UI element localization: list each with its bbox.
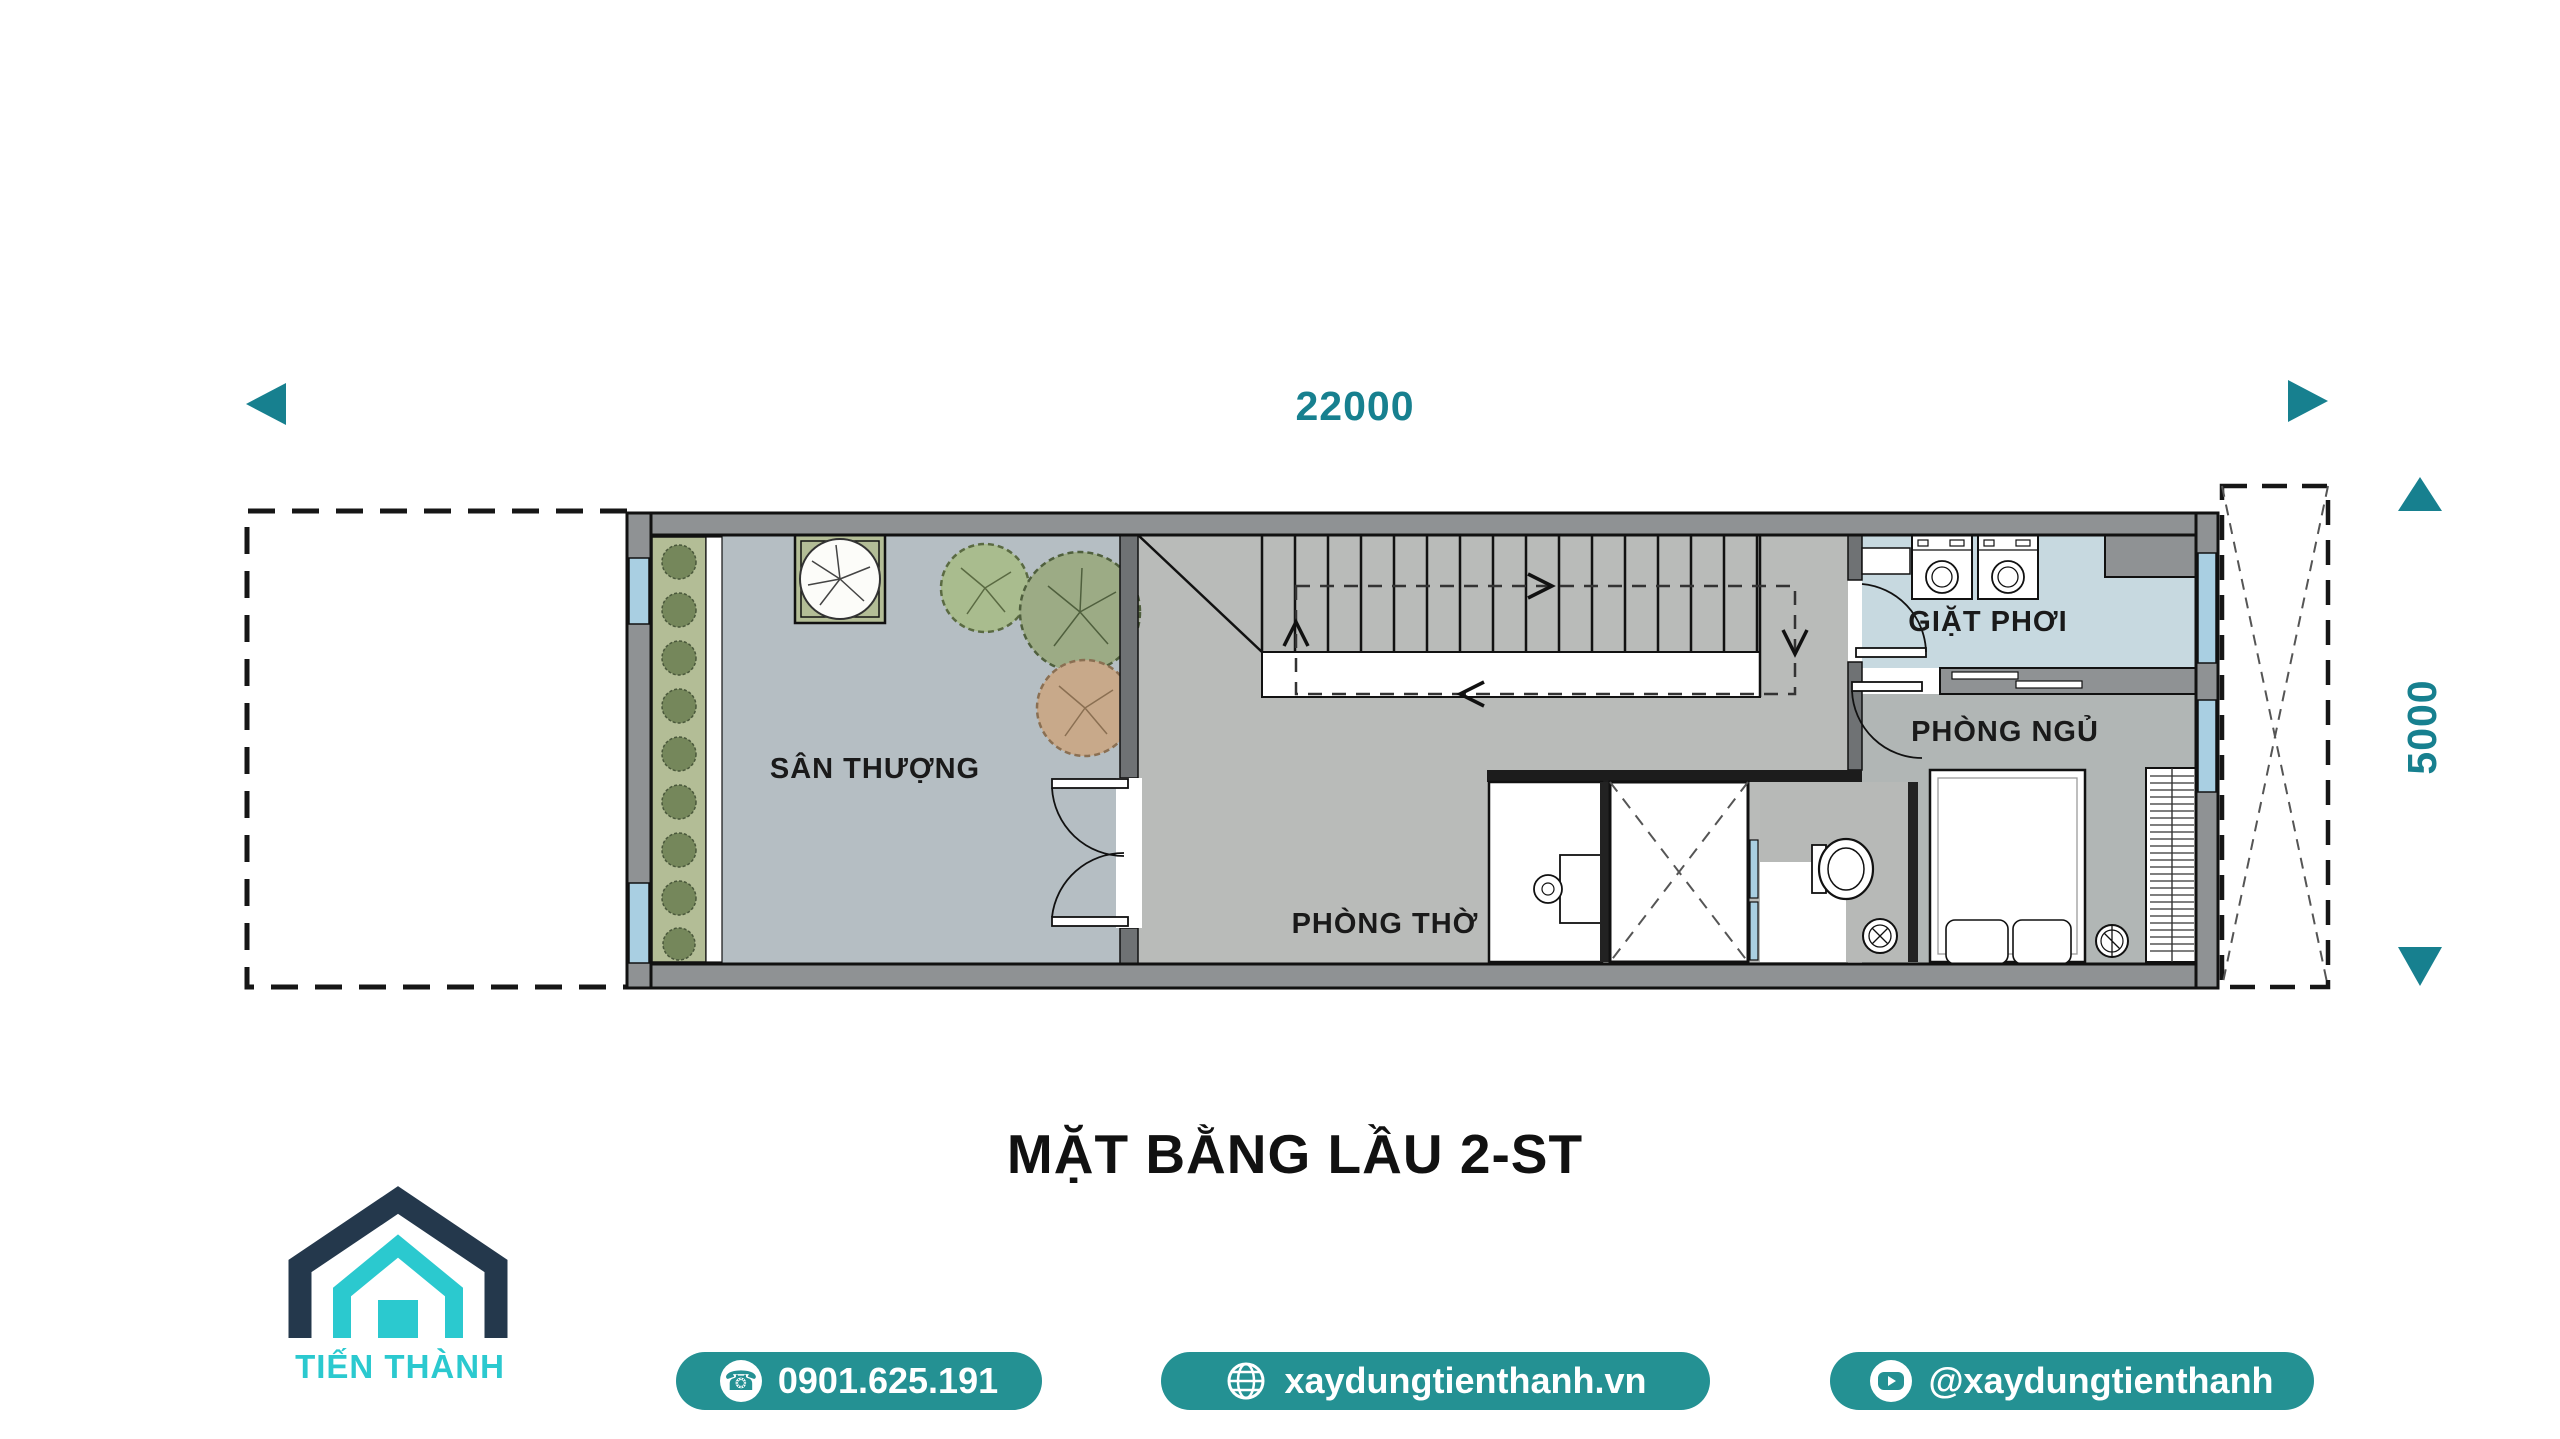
website-url: xaydungtienthanh.vn — [1284, 1360, 1646, 1402]
phone-badge: ☎ 0901.625.191 — [676, 1352, 1042, 1410]
globe-icon — [1224, 1359, 1268, 1403]
window — [629, 558, 649, 624]
sliding-door-panel — [1952, 672, 2018, 679]
room-label-worship: PHÒNG THỜ — [1235, 908, 1535, 941]
width-dimension-label: 22000 — [1255, 383, 1455, 430]
room-label-terrace: SÂN THƯỢNG — [725, 753, 1025, 786]
void-shaft — [1610, 782, 1748, 962]
left-dashed-boundary — [247, 511, 627, 987]
room-label-laundry: GIẶT PHƠI — [1838, 606, 2138, 639]
website-badge: xaydungtienthanh.vn — [1161, 1352, 1710, 1410]
walkway-strip — [706, 537, 722, 962]
incense-bowl — [1534, 875, 1562, 903]
service-rooms — [1487, 770, 1918, 962]
youtube-icon — [1870, 1360, 1912, 1402]
bed — [1930, 770, 2085, 964]
arrow-right-icon — [2288, 380, 2328, 422]
bathroom — [1760, 782, 1918, 962]
wardrobe — [2146, 768, 2198, 962]
top-wall — [627, 513, 2218, 535]
pillow — [2013, 920, 2071, 964]
service-rooms-top-wall — [1487, 770, 1862, 782]
washing-machine — [1978, 535, 2038, 599]
youtube-handle: @xaydungtienthanh — [1928, 1360, 2273, 1402]
plan-title: MẶT BẰNG LẦU 2-ST — [900, 1122, 1690, 1186]
company-name: TIẾN THÀNH — [268, 1348, 532, 1386]
bedroom-fan — [2096, 925, 2128, 957]
bottom-wall — [627, 964, 2218, 988]
floor-plan-graphics — [0, 0, 2560, 1439]
bath-slider-panel — [1750, 840, 1758, 898]
stair-railing-gap — [1262, 652, 1760, 697]
tree-planter-box — [795, 535, 885, 623]
washing-machine — [1912, 535, 1972, 599]
poster-canvas: 22000 5000 SÂN THƯỢNG PHÒNG THỜ GIẶT PHƠ… — [0, 0, 2560, 1439]
arrow-down-icon — [2398, 947, 2442, 986]
window — [2198, 553, 2216, 663]
arrow-up-icon — [2398, 477, 2442, 511]
planter-strip — [652, 537, 722, 962]
youtube-badge: @xaydungtienthanh — [1830, 1352, 2314, 1410]
arrow-left-icon — [246, 383, 286, 425]
bedroom-furniture — [1930, 768, 2198, 964]
window — [629, 883, 649, 963]
company-logo-house-icon — [300, 1200, 496, 1338]
pillow — [1946, 920, 2008, 964]
window — [2198, 700, 2216, 792]
depth-dimension-label: 5000 — [2392, 657, 2452, 797]
altar-table — [1560, 855, 1602, 923]
corner-wall-block — [2105, 535, 2196, 577]
right-dashed-void-box — [2222, 486, 2328, 987]
sliding-door-panel — [2016, 681, 2082, 688]
floor-drain — [1863, 919, 1897, 953]
bath-slider-panel — [1750, 902, 1758, 960]
laundry-counter — [1862, 548, 1910, 574]
toilet — [1812, 839, 1873, 899]
phone-icon: ☎ — [720, 1360, 762, 1402]
logo-door-square — [378, 1300, 418, 1338]
phone-number: 0901.625.191 — [778, 1360, 998, 1402]
room-label-bedroom: PHÒNG NGỦ — [1855, 716, 2155, 749]
